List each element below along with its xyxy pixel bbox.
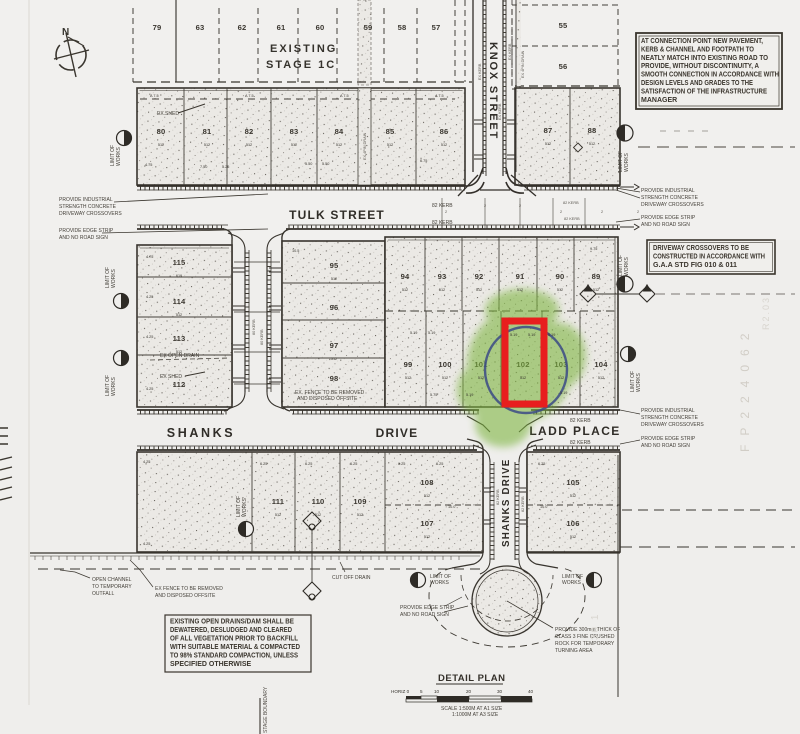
svg-text:5.19: 5.19: [410, 331, 417, 335]
svg-text:512: 512: [204, 143, 210, 147]
svg-text:5.50: 5.50: [322, 162, 329, 166]
svg-text:STRENGTH CONCRETE: STRENGTH CONCRETE: [641, 415, 699, 421]
svg-text:82 KERB: 82 KERB: [432, 203, 453, 209]
svg-text:TO 98% STANDARD COMPACTION, UN: TO 98% STANDARD COMPACTION, UNLESS: [170, 653, 298, 660]
svg-text:WORKS: WORKS: [116, 146, 122, 166]
svg-text:DESIGN LEVELS AND GRADES TO TH: DESIGN LEVELS AND GRADES TO THE: [641, 80, 753, 87]
svg-text:55: 55: [559, 21, 568, 30]
svg-text:10.5: 10.5: [292, 249, 299, 253]
svg-text:92: 92: [475, 272, 484, 281]
svg-text:EX FENCE TO BE REMOVED: EX FENCE TO BE REMOVED: [155, 586, 223, 592]
svg-text:WORKS: WORKS: [636, 372, 642, 392]
svg-text:EX KERB: EX KERB: [478, 63, 482, 80]
svg-text:110: 110: [312, 497, 325, 506]
svg-text:R2.03: R2.03: [761, 296, 771, 330]
svg-text:512: 512: [476, 288, 482, 292]
svg-text:AT CONNECTION POINT NEW PAVEME: AT CONNECTION POINT NEW PAVEMENT,: [641, 38, 763, 45]
svg-text:512: 512: [331, 277, 337, 281]
svg-text:111: 111: [272, 497, 285, 506]
svg-text:4.25: 4.25: [146, 387, 153, 391]
svg-text:4.25: 4.25: [146, 335, 153, 339]
svg-text:82 KERB: 82 KERB: [496, 489, 500, 505]
svg-text:A 7.5: A 7.5: [150, 94, 159, 98]
svg-text:86: 86: [440, 127, 449, 136]
svg-text:512: 512: [439, 288, 445, 292]
svg-text:2: 2: [445, 210, 447, 214]
svg-text:CONSTRUCTED IN ACCORDANCE WITH: CONSTRUCTED IN ACCORDANCE WITH: [653, 253, 765, 260]
svg-text:512: 512: [589, 142, 595, 146]
svg-text:107: 107: [420, 519, 433, 528]
svg-text:A 7.5: A 7.5: [245, 94, 254, 98]
svg-text:80 KERB: 80 KERB: [252, 319, 256, 335]
svg-text:A 7.5: A 7.5: [435, 94, 444, 98]
svg-text:STAGE BOUNDARY: STAGE BOUNDARY: [263, 686, 269, 733]
svg-text:AND DISPOSED OFFSITE: AND DISPOSED OFFSITE: [155, 593, 216, 599]
svg-text:512: 512: [357, 513, 363, 517]
svg-text:TO TEMPORARY: TO TEMPORARY: [92, 584, 132, 590]
svg-text:82 KERB: 82 KERB: [570, 418, 591, 424]
svg-text:113: 113: [173, 334, 186, 343]
svg-text:A 7.5: A 7.5: [340, 94, 349, 98]
svg-text:EX 4PIN DRAIN: EX 4PIN DRAIN: [363, 132, 367, 160]
svg-text:DRIVEWAY CROSSOVERS: DRIVEWAY CROSSOVERS: [59, 211, 122, 217]
svg-text:TURNING AREA: TURNING AREA: [555, 648, 593, 654]
svg-text:61: 61: [277, 23, 286, 32]
svg-text:512: 512: [424, 494, 430, 498]
svg-text:114: 114: [173, 297, 186, 306]
svg-text:512: 512: [176, 350, 182, 354]
svg-text:90: 90: [556, 272, 565, 281]
svg-text:619: 619: [176, 274, 182, 278]
svg-text:512: 512: [176, 313, 182, 317]
svg-text:512: 512: [517, 288, 523, 292]
svg-text:EX KERB: EX KERB: [508, 43, 512, 60]
svg-text:FP224062: FP224062: [738, 325, 752, 452]
svg-text:512: 512: [402, 288, 408, 292]
svg-text:DRIVEWAY CROSSOVERS TO BE: DRIVEWAY CROSSOVERS TO BE: [653, 245, 749, 252]
svg-text:AND NO ROAD SIGN: AND NO ROAD SIGN: [641, 222, 690, 228]
svg-text:512: 512: [387, 143, 393, 147]
svg-text:KNOX STREET: KNOX STREET: [487, 42, 499, 140]
svg-text:82 KERB: 82 KERB: [564, 217, 580, 221]
svg-text:DETAIL PLAN: DETAIL PLAN: [438, 673, 505, 684]
svg-text:512: 512: [158, 143, 164, 147]
svg-text:DRIVEWAY CROSSOVERS: DRIVEWAY CROSSOVERS: [641, 202, 704, 208]
svg-text:512: 512: [598, 376, 604, 380]
svg-text:100: 100: [438, 360, 451, 369]
svg-text:PROVIDE INDUSTRIAL: PROVIDE INDUSTRIAL: [59, 197, 113, 203]
svg-text:95: 95: [330, 261, 339, 270]
svg-text:109: 109: [353, 497, 366, 506]
svg-text:EX.SHED: EX.SHED: [157, 111, 179, 117]
svg-text:5.19: 5.19: [560, 391, 567, 395]
svg-text:HORIZ 0: HORIZ 0: [391, 689, 410, 694]
svg-text:80 KERB: 80 KERB: [260, 329, 264, 345]
svg-text:98: 98: [330, 374, 339, 383]
svg-text:SPECIFIED OTHERWISE: SPECIFIED OTHERWISE: [170, 661, 251, 668]
svg-text:SMOOTH CONNECTION IN ACCORDANC: SMOOTH CONNECTION IN ACCORDANCE WITH: [641, 72, 779, 79]
svg-text:5.19: 5.19: [466, 393, 473, 397]
svg-text:89: 89: [592, 272, 601, 281]
svg-text:G.A.A STD FIG 010 & 011: G.A.A STD FIG 010 & 011: [653, 262, 737, 269]
svg-text:512: 512: [478, 376, 484, 380]
svg-text:NEATLY MATCH INTO EXISTING ROA: NEATLY MATCH INTO EXISTING ROAD TO: [641, 55, 768, 62]
svg-text:93: 93: [438, 272, 447, 281]
svg-text:2: 2: [519, 204, 521, 208]
svg-text:40: 40: [528, 689, 534, 694]
svg-text:2: 2: [484, 204, 486, 208]
svg-text:PROVIDE INDUSTRIAL: PROVIDE INDUSTRIAL: [641, 408, 695, 414]
svg-text:5.25: 5.25: [222, 165, 229, 169]
svg-text:512: 512: [520, 376, 526, 380]
svg-text:PROVIDE EDGE STRIP: PROVIDE EDGE STRIP: [400, 605, 455, 611]
svg-text:57: 57: [432, 23, 441, 32]
svg-text:512: 512: [336, 143, 342, 147]
svg-text:30: 30: [497, 689, 503, 694]
svg-text:EX 4PIN DRAIN: EX 4PIN DRAIN: [521, 50, 525, 78]
svg-text:512: 512: [441, 143, 447, 147]
svg-text:82 KERB: 82 KERB: [521, 496, 525, 512]
svg-text:105: 105: [566, 478, 580, 487]
svg-text:512: 512: [593, 288, 599, 292]
svg-text:63: 63: [196, 23, 205, 32]
svg-text:WORKS: WORKS: [242, 497, 248, 517]
svg-text:AND DISPOSED OFFSITE: AND DISPOSED OFFSITE: [297, 396, 358, 402]
svg-text:2: 2: [601, 210, 603, 214]
svg-text:6.25: 6.25: [398, 462, 405, 466]
svg-text:2: 2: [560, 210, 562, 214]
svg-text:EX SHED: EX SHED: [160, 374, 182, 380]
svg-text:115: 115: [173, 258, 186, 267]
svg-text:5.19: 5.19: [428, 331, 435, 335]
svg-text:6.25: 6.25: [436, 462, 443, 466]
svg-text:82 KERB: 82 KERB: [432, 220, 453, 226]
svg-text:87: 87: [544, 126, 553, 135]
svg-text:82: 82: [245, 127, 254, 136]
svg-text:4.25: 4.25: [143, 542, 150, 546]
svg-text:LADD PLACE: LADD PLACE: [529, 424, 620, 438]
svg-text:512: 512: [275, 513, 281, 517]
svg-text:94: 94: [401, 272, 410, 281]
svg-text:5.75: 5.75: [430, 393, 437, 397]
svg-text:DEWATERED, DESLUDGED AND CLEAR: DEWATERED, DESLUDGED AND CLEARED: [170, 627, 292, 634]
svg-text:108: 108: [420, 478, 433, 487]
svg-text:4.25: 4.25: [146, 295, 153, 299]
svg-text:10.0: 10.0: [540, 505, 547, 509]
svg-text:4.75: 4.75: [145, 163, 152, 167]
svg-text:CLASS 3 FINE CRUSHED: CLASS 3 FINE CRUSHED: [555, 634, 615, 640]
svg-text:WORKS: WORKS: [430, 580, 450, 586]
svg-text:DRIVE: DRIVE: [376, 426, 419, 440]
svg-text:106: 106: [566, 519, 579, 528]
svg-text:OUTFALL: OUTFALL: [92, 591, 114, 597]
svg-text:91: 91: [516, 272, 525, 281]
svg-text:6.25: 6.25: [260, 462, 267, 466]
svg-text:5.19: 5.19: [510, 333, 517, 337]
svg-text:56: 56: [559, 62, 568, 71]
svg-text:10: 10: [434, 689, 440, 694]
svg-text:OPEN CHANNEL: OPEN CHANNEL: [92, 577, 132, 583]
svg-text:20: 20: [466, 689, 472, 694]
svg-text:EX KERB: EX KERB: [498, 103, 502, 120]
svg-text:82 KERB: 82 KERB: [570, 440, 591, 446]
svg-text:6.25: 6.25: [538, 462, 545, 466]
svg-text:WITH SUITABLE MATERIAL & COMPA: WITH SUITABLE MATERIAL & COMPACTED: [170, 644, 300, 651]
svg-text:1:1000M AT A3 SIZE: 1:1000M AT A3 SIZE: [452, 712, 499, 718]
svg-text:512: 512: [331, 357, 337, 361]
svg-text:512: 512: [570, 535, 576, 539]
svg-text:STAGE 1C: STAGE 1C: [266, 59, 336, 71]
svg-text:62: 62: [238, 23, 247, 32]
svg-text:79: 79: [153, 23, 162, 32]
svg-text:104: 104: [594, 360, 608, 369]
svg-text:96: 96: [330, 303, 339, 312]
svg-text:PROVIDE INDUSTRIAL: PROVIDE INDUSTRIAL: [641, 188, 695, 194]
svg-text:9.75: 9.75: [590, 247, 597, 251]
svg-text:CUT OFF DRAIN: CUT OFF DRAIN: [332, 575, 371, 581]
svg-text:99: 99: [404, 360, 413, 369]
svg-text:STRENGTH CONCRETE: STRENGTH CONCRETE: [59, 204, 117, 210]
svg-text:80: 80: [157, 127, 166, 136]
svg-text:WORKS: WORKS: [562, 580, 582, 586]
svg-text:512: 512: [315, 513, 321, 517]
svg-text:STRENGTH CONCRETE: STRENGTH CONCRETE: [641, 195, 699, 201]
svg-text:WORKS: WORKS: [111, 376, 117, 396]
svg-text:SHANKS: SHANKS: [167, 426, 235, 440]
svg-text:7.50: 7.50: [200, 165, 207, 169]
svg-text:4.75: 4.75: [146, 255, 153, 259]
svg-text:5: 5: [420, 689, 423, 694]
svg-text:PROVIDE, WITHOUT DISCONTINUITY: PROVIDE, WITHOUT DISCONTINUITY, A: [641, 63, 759, 70]
svg-text:SATISFACTION OF THE INFRASTRUC: SATISFACTION OF THE INFRASTRUCTURE: [641, 88, 767, 95]
svg-text:5.19: 5.19: [528, 333, 535, 337]
svg-text:WORKS: WORKS: [624, 256, 630, 276]
svg-text:2: 2: [637, 210, 639, 214]
svg-text:97: 97: [330, 341, 339, 350]
svg-text:10.0: 10.0: [448, 505, 455, 509]
svg-text:ROCK FOR TEMPORARY: ROCK FOR TEMPORARY: [555, 641, 615, 647]
svg-text:SHANKS DRIVE: SHANKS DRIVE: [501, 459, 512, 547]
svg-text:AND NO ROAD SIGN: AND NO ROAD SIGN: [641, 443, 690, 449]
svg-text:512: 512: [246, 143, 252, 147]
svg-text:30 1: 30 1: [590, 613, 601, 640]
svg-text:88: 88: [588, 126, 597, 135]
svg-text:512: 512: [405, 376, 411, 380]
svg-text:EXISTING: EXISTING: [270, 43, 337, 55]
svg-text:PROVIDE EDGE STRIP: PROVIDE EDGE STRIP: [641, 215, 696, 221]
svg-text:4.25: 4.25: [143, 460, 150, 464]
svg-text:6.75: 6.75: [420, 159, 427, 163]
svg-text:TULK STREET: TULK STREET: [289, 208, 385, 222]
svg-text:N: N: [62, 27, 69, 38]
svg-text:WORKS: WORKS: [111, 268, 117, 288]
svg-text:PROVIDE 300mm THICK OF: PROVIDE 300mm THICK OF: [555, 627, 620, 633]
svg-text:KERB & CHANNEL AND FOOTPATH TO: KERB & CHANNEL AND FOOTPATH TO: [641, 46, 754, 53]
svg-text:81: 81: [203, 127, 212, 136]
svg-text:MANAGER: MANAGER: [641, 97, 677, 104]
svg-text:84: 84: [335, 127, 344, 136]
svg-text:58: 58: [398, 23, 407, 32]
svg-text:6.25: 6.25: [305, 462, 312, 466]
svg-text:512: 512: [545, 142, 551, 146]
svg-text:83: 83: [290, 127, 299, 136]
svg-text:60: 60: [316, 23, 325, 32]
svg-text:112: 112: [173, 380, 186, 389]
svg-text:PROVIDE EDGE STRIP: PROVIDE EDGE STRIP: [641, 436, 696, 442]
svg-text:512: 512: [442, 376, 448, 380]
svg-text:512: 512: [424, 535, 430, 539]
svg-text:85: 85: [386, 127, 395, 136]
svg-text:512: 512: [570, 494, 576, 498]
svg-text:OF ALL VEGETATION PRIOR TO BAC: OF ALL VEGETATION PRIOR TO BACKFILL: [170, 636, 299, 643]
svg-text:EXISTING OPEN DRAINS/DAM SHALL: EXISTING OPEN DRAINS/DAM SHALL BE: [170, 619, 294, 626]
svg-text:82 KERB: 82 KERB: [563, 201, 579, 205]
svg-text:AND NO ROAD SIGN: AND NO ROAD SIGN: [59, 235, 108, 241]
svg-text:AND NO ROAD SIGN: AND NO ROAD SIGN: [400, 612, 449, 618]
svg-text:512: 512: [291, 143, 297, 147]
svg-text:512: 512: [558, 376, 564, 380]
svg-text:6.25: 6.25: [350, 462, 357, 466]
svg-text:5.19: 5.19: [548, 333, 555, 337]
svg-text:512: 512: [557, 288, 563, 292]
svg-text:59: 59: [364, 23, 373, 32]
svg-text:DRIVEWAY CROSSOVERS: DRIVEWAY CROSSOVERS: [641, 422, 704, 428]
svg-text:WORKS: WORKS: [624, 152, 630, 172]
svg-text:5.50: 5.50: [305, 162, 312, 166]
